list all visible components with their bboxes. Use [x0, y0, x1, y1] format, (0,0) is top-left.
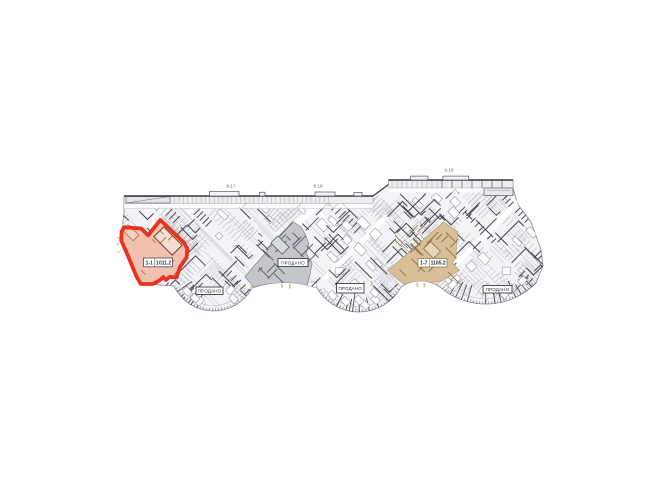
svg-text:К.18: К.18: [313, 184, 323, 189]
svg-text:ПРОДАНО: ПРОДАНО: [198, 289, 222, 294]
svg-text:1165.2: 1165.2: [431, 261, 446, 267]
svg-text:ПРОДАНО: ПРОДАНО: [338, 286, 362, 291]
svg-text:К.17: К.17: [226, 184, 236, 189]
svg-text:ПРОДАНО: ПРОДАНО: [486, 287, 510, 292]
svg-text:К.19: К.19: [444, 168, 454, 173]
svg-text:1011.2: 1011.2: [156, 260, 171, 266]
svg-text:1-7: 1-7: [420, 261, 427, 267]
svg-text:1-1: 1-1: [146, 260, 153, 266]
svg-text:ПРОДАНО: ПРОДАНО: [281, 260, 305, 265]
